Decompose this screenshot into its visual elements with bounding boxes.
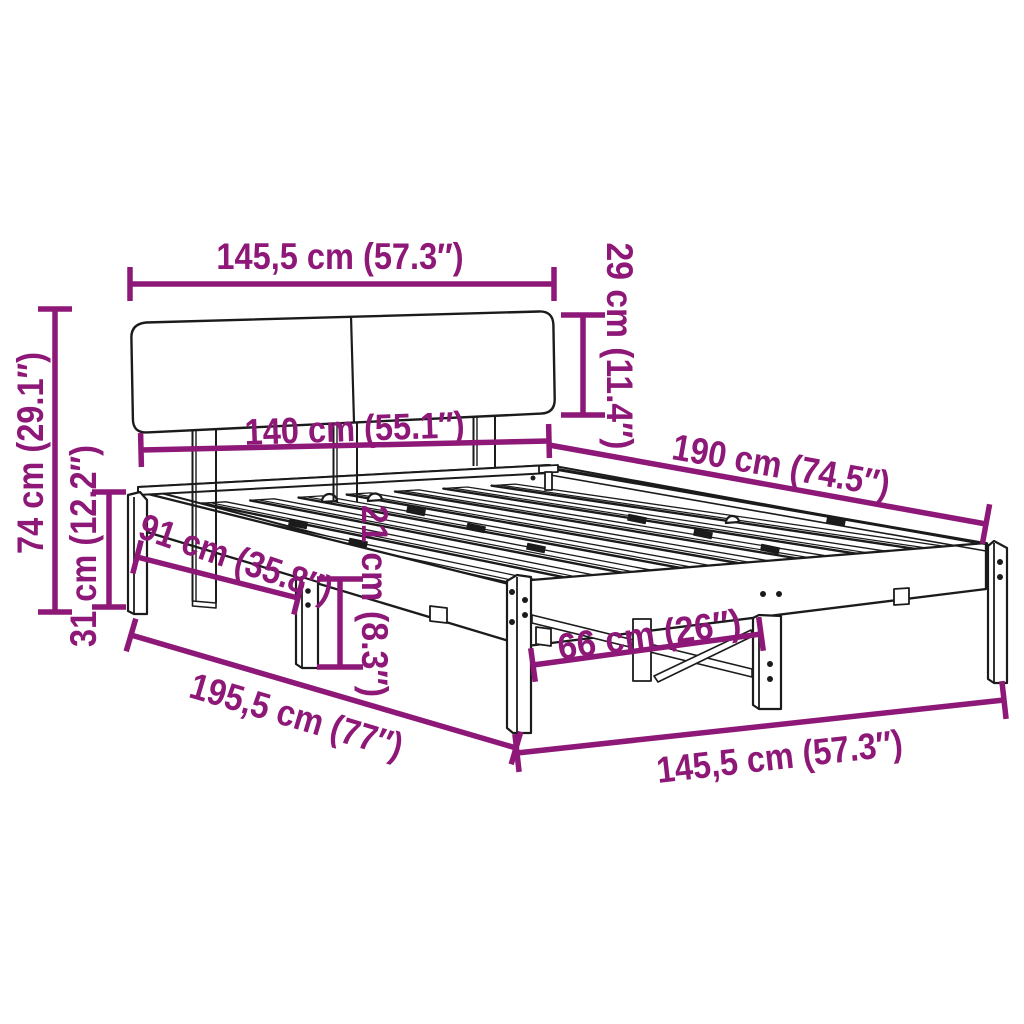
- svg-text:29 cm (11.4″): 29 cm (11.4″): [599, 243, 640, 450]
- svg-text:21 cm (8.3″): 21 cm (8.3″): [354, 505, 396, 697]
- svg-text:145,5 cm (57.3″): 145,5 cm (57.3″): [216, 236, 463, 277]
- svg-text:31 cm (12.2″): 31 cm (12.2″): [63, 445, 104, 647]
- svg-text:74 cm (29.1″): 74 cm (29.1″): [10, 352, 51, 554]
- svg-text:140 cm (55.1″): 140 cm (55.1″): [244, 404, 465, 453]
